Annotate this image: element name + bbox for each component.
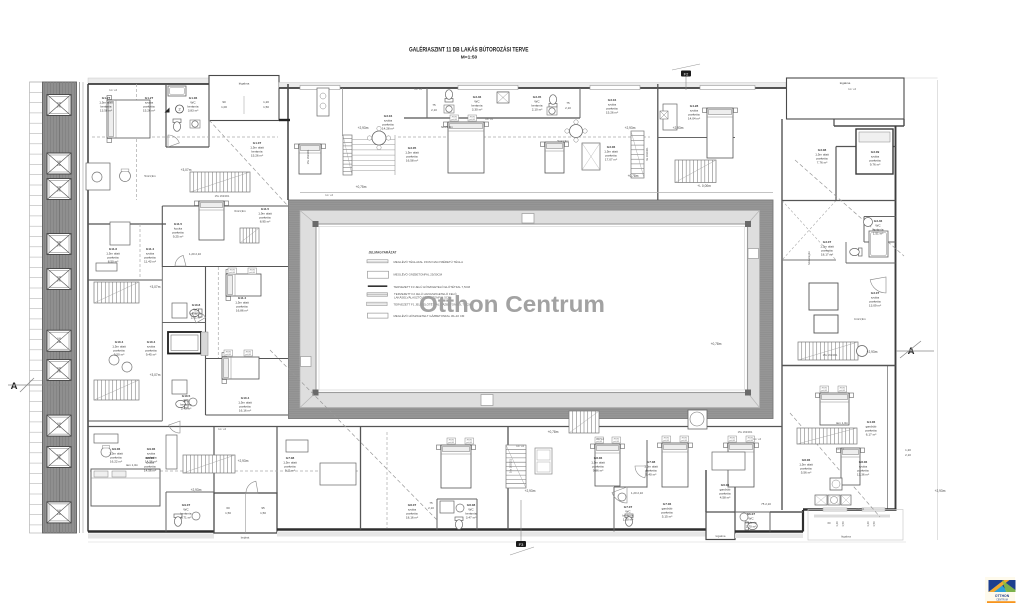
svg-text:1,50: 1,50 (263, 105, 269, 109)
svg-text:9,40 m²: 9,40 m² (646, 473, 657, 477)
svg-text:15,26 m²: 15,26 m² (251, 154, 263, 158)
svg-text:p=0,43: p=0,43 (225, 354, 231, 356)
svg-text:+2,93m: +2,93m (191, 488, 202, 492)
svg-text:p=0,43: p=0,43 (466, 442, 472, 444)
svg-text:+2,93m: +2,93m (935, 489, 946, 493)
svg-text:60: 60 (827, 521, 831, 525)
svg-text:6m/1,9m: 6m/1,9m (234, 209, 246, 213)
svg-text:p=0,43: p=0,43 (839, 390, 845, 392)
svg-text:lsm vdl: lsm vdl (325, 194, 333, 197)
svg-text:15,26 m²: 15,26 m² (606, 111, 618, 115)
svg-text:p=0,43: p=0,43 (245, 354, 251, 356)
svg-text:fsm/1,9m: fsm/1,9m (441, 125, 453, 129)
svg-text:JELMAGYARÁZAT: JELMAGYARÁZAT (369, 249, 397, 254)
svg-text:15x 163/301: 15x 163/301 (738, 430, 753, 434)
svg-text:GALÉRIASZINT 11 DB LAKÁS BÚTOR: GALÉRIASZINT 11 DB LAKÁS BÚTOROZÁSI TERV… (409, 46, 529, 54)
svg-text:+0,78m: +0,78m (548, 430, 559, 434)
svg-text:+3,07m: +3,07m (181, 168, 192, 172)
svg-text:2,01 m²: 2,01 m² (191, 316, 202, 320)
svg-text:13,58 m²: 13,58 m² (100, 109, 112, 113)
svg-text:p=0,43: p=0,43 (681, 440, 687, 442)
svg-text:5,15 m²: 5,15 m² (662, 515, 673, 519)
svg-text:90: 90 (222, 100, 226, 104)
svg-text:p=0,43: p=0,43 (451, 119, 457, 121)
svg-text:140: 140 (57, 341, 62, 344)
svg-text:16,86 m²: 16,86 m² (236, 309, 248, 313)
svg-text:M=1:50: M=1:50 (461, 54, 478, 60)
svg-text:p=0,43: p=0,43 (729, 440, 735, 442)
svg-text:140: 140 (57, 513, 62, 516)
svg-text:tam 1,3m: tam 1,3m (836, 421, 849, 425)
svg-text:6,17 m²: 6,17 m² (866, 433, 877, 437)
svg-text:+0,78m: +0,78m (628, 174, 639, 178)
svg-text:16,16 m²: 16,16 m² (239, 409, 251, 413)
svg-text:lsm vdl: lsm vdl (218, 428, 226, 431)
svg-text:+/- 0,00m: +/- 0,00m (697, 184, 711, 188)
svg-text:TERVEZETT F3 JELŰ HŐSZIGETELŐ: TERVEZETT F3 JELŰ HŐSZIGETELŐ ELŐTÉTFAL … (394, 284, 471, 289)
svg-text:p=0,43: p=0,43 (613, 441, 619, 443)
svg-text:felülvilágító: felülvilágító (807, 251, 811, 265)
svg-text:8,95 m²: 8,95 m² (260, 220, 271, 224)
svg-text:légakna: légakna (841, 535, 851, 539)
svg-text:lsm vdl: lsm vdl (856, 508, 864, 511)
svg-text:p=0,43: p=0,43 (821, 390, 827, 392)
svg-text:75 2,10: 75 2,10 (761, 502, 771, 506)
svg-text:+3,07m: +3,07m (150, 285, 161, 289)
svg-text:+2,93m: +2,93m (358, 126, 369, 130)
svg-text:F2: F2 (684, 71, 689, 76)
svg-text:lsm vdl: lsm vdl (753, 438, 761, 441)
svg-text:14,56 m²: 14,56 m² (144, 469, 156, 473)
svg-text:95: 95 (261, 506, 265, 510)
svg-text:140: 140 (57, 458, 62, 461)
svg-text:11,43 m²: 11,43 m² (144, 260, 156, 264)
svg-text:1,50: 1,50 (260, 511, 266, 515)
svg-text:140: 140 (57, 106, 62, 109)
svg-text:15,26 m²: 15,26 m² (143, 109, 155, 113)
svg-text:3,83 m²: 3,83 m² (188, 109, 199, 113)
svg-text:9,45 m²: 9,45 m² (146, 353, 157, 357)
svg-text:1,50: 1,50 (225, 511, 231, 515)
svg-text:9,25 m²: 9,25 m² (173, 235, 184, 239)
svg-text:60: 60 (226, 506, 230, 510)
svg-text:5,56 m²: 5,56 m² (801, 471, 812, 475)
svg-text:15x 163/301: 15x 163/301 (306, 149, 310, 164)
svg-text:75: 75 (566, 101, 570, 105)
svg-text:4,58 m²: 4,58 m² (720, 496, 731, 500)
svg-text:F3: F3 (519, 542, 524, 547)
svg-text:1,50 m²: 1,50 m² (623, 518, 634, 522)
svg-text:8,50 m²: 8,50 m² (108, 260, 119, 264)
svg-text:p=0,43: p=0,43 (596, 441, 602, 443)
svg-text:lsm vdl: lsm vdl (485, 118, 493, 121)
svg-text:3,47 m²: 3,47 m² (466, 516, 477, 520)
svg-text:15x 163/301: 15x 163/301 (823, 353, 838, 357)
svg-text:2,10: 2,10 (431, 108, 437, 112)
svg-text:OTTHON: OTTHON (995, 594, 1010, 598)
svg-text:3,71 m²: 3,71 m² (181, 516, 192, 520)
svg-text:MEGLÉVŐ TÉGLAFAL 15CM NAGYMÉRE: MEGLÉVŐ TÉGLAFAL 15CM NAGYMÉRETŰ TÉGLA (394, 259, 464, 264)
svg-text:tam 1,3m: tam 1,3m (126, 463, 139, 467)
svg-text:9,50 m²: 9,50 m² (114, 353, 125, 357)
svg-text:2: 2 (178, 108, 180, 112)
svg-text:1,00: 1,00 (221, 105, 227, 109)
svg-text:bejárat: bejárat (241, 536, 250, 540)
svg-text:p=0,43: p=0,43 (469, 119, 475, 121)
svg-text:A: A (11, 381, 18, 392)
svg-text:75: 75 (432, 103, 436, 107)
svg-text:+2,93m: +2,93m (673, 126, 684, 130)
svg-text:1,20: 1,20 (263, 100, 269, 104)
svg-text:2,10: 2,10 (428, 506, 434, 510)
svg-text:16,22 m²: 16,22 m² (110, 460, 122, 464)
svg-text:1,20 2,10: 1,20 2,10 (189, 252, 201, 256)
svg-text:+2,93m: +2,93m (238, 459, 249, 463)
svg-text:2,10: 2,10 (565, 106, 571, 110)
svg-text:lsm vdl: lsm vdl (109, 89, 117, 92)
svg-text:2,70 m²: 2,70 m² (746, 525, 757, 529)
svg-text:lsm vdl: lsm vdl (516, 445, 524, 448)
svg-text:3,30 m²: 3,30 m² (472, 108, 483, 112)
svg-text:lsm vdl: lsm vdl (414, 88, 422, 91)
svg-text:14,28 m²: 14,28 m² (382, 127, 394, 131)
svg-text:+0,75m: +0,75m (356, 185, 367, 189)
svg-text:10x 163/301: 10x 163/301 (510, 459, 513, 473)
svg-text:140: 140 (57, 371, 62, 374)
svg-text:+2,93m: +2,93m (525, 489, 536, 493)
svg-text:9,11 m²: 9,11 m² (285, 469, 295, 473)
svg-text:légakna: légakna (840, 81, 851, 85)
svg-text:140: 140 (57, 190, 62, 193)
svg-text:5m/1,9m: 5m/1,9m (557, 139, 569, 143)
svg-text:bm/1,9m: bm/1,9m (854, 317, 866, 321)
svg-text:140: 140 (57, 280, 62, 283)
svg-text:+2,93m: +2,93m (625, 126, 636, 130)
svg-text:1,50: 1,50 (841, 521, 845, 527)
svg-text:140: 140 (57, 245, 62, 248)
svg-text:7,76 m²: 7,76 m² (817, 161, 828, 165)
svg-text:5m/1,9m: 5m/1,9m (144, 174, 156, 178)
svg-text:Otthon Centrum: Otthon Centrum (419, 291, 605, 317)
svg-text:140: 140 (57, 426, 62, 429)
svg-text:9,76 m²: 9,76 m² (870, 163, 881, 167)
svg-text:15x 163/301: 15x 163/301 (215, 194, 230, 198)
svg-text:p=0,43: p=0,43 (448, 442, 454, 444)
svg-text:p=0,43: p=0,43 (663, 440, 669, 442)
svg-text:13,36 m²: 13,36 m² (857, 473, 869, 477)
svg-text:1,20 2,10: 1,20 2,10 (631, 491, 643, 495)
svg-text:lsm vdl: lsm vdl (848, 88, 856, 91)
svg-text:16,58 m²: 16,58 m² (406, 159, 418, 163)
svg-text:p=0,43: p=0,43 (229, 272, 235, 274)
svg-text:9,86 m²: 9,86 m² (593, 469, 604, 473)
svg-text:18,16 m²: 18,16 m² (406, 516, 418, 520)
svg-text:1,20: 1,20 (835, 521, 839, 527)
svg-text:13,09 m²: 13,09 m² (869, 304, 881, 308)
svg-text:1,50: 1,50 (872, 521, 876, 527)
svg-text:MEGLÉVŐ GÁZBETONFAL 25/30CM: MEGLÉVŐ GÁZBETONFAL 25/30CM (394, 271, 443, 276)
svg-text:18,17 m²: 18,17 m² (821, 253, 833, 257)
svg-text:9x 163/301: 9x 163/301 (645, 147, 649, 161)
svg-text:CENTRUM: CENTRUM (996, 599, 1008, 601)
svg-text:2,10: 2,10 (905, 453, 911, 457)
svg-text:140: 140 (57, 164, 62, 167)
svg-text:14,04 m²: 14,04 m² (688, 117, 700, 121)
svg-text:2,10 m²: 2,10 m² (532, 108, 543, 112)
svg-text:75: 75 (429, 501, 433, 505)
svg-text:légakna: légakna (716, 534, 726, 538)
svg-text:17,07 m²: 17,07 m² (605, 158, 617, 162)
svg-text:+2,93m: +2,93m (867, 350, 878, 354)
svg-text:+0,78m: +0,78m (711, 342, 722, 346)
svg-text:1,20: 1,20 (866, 521, 870, 527)
svg-text:p=0,43: p=0,43 (249, 272, 255, 274)
svg-text:1,51 m²: 1,51 m² (873, 232, 884, 236)
svg-text:lsm vdl: lsm vdl (836, 448, 844, 451)
svg-text:+3,07m: +3,07m (150, 373, 161, 377)
svg-text:lsm vdl: lsm vdl (596, 438, 604, 441)
svg-text:3,43 m²: 3,43 m² (181, 407, 192, 411)
svg-text:légakna: légakna (239, 82, 250, 86)
svg-text:1,20: 1,20 (905, 448, 911, 452)
